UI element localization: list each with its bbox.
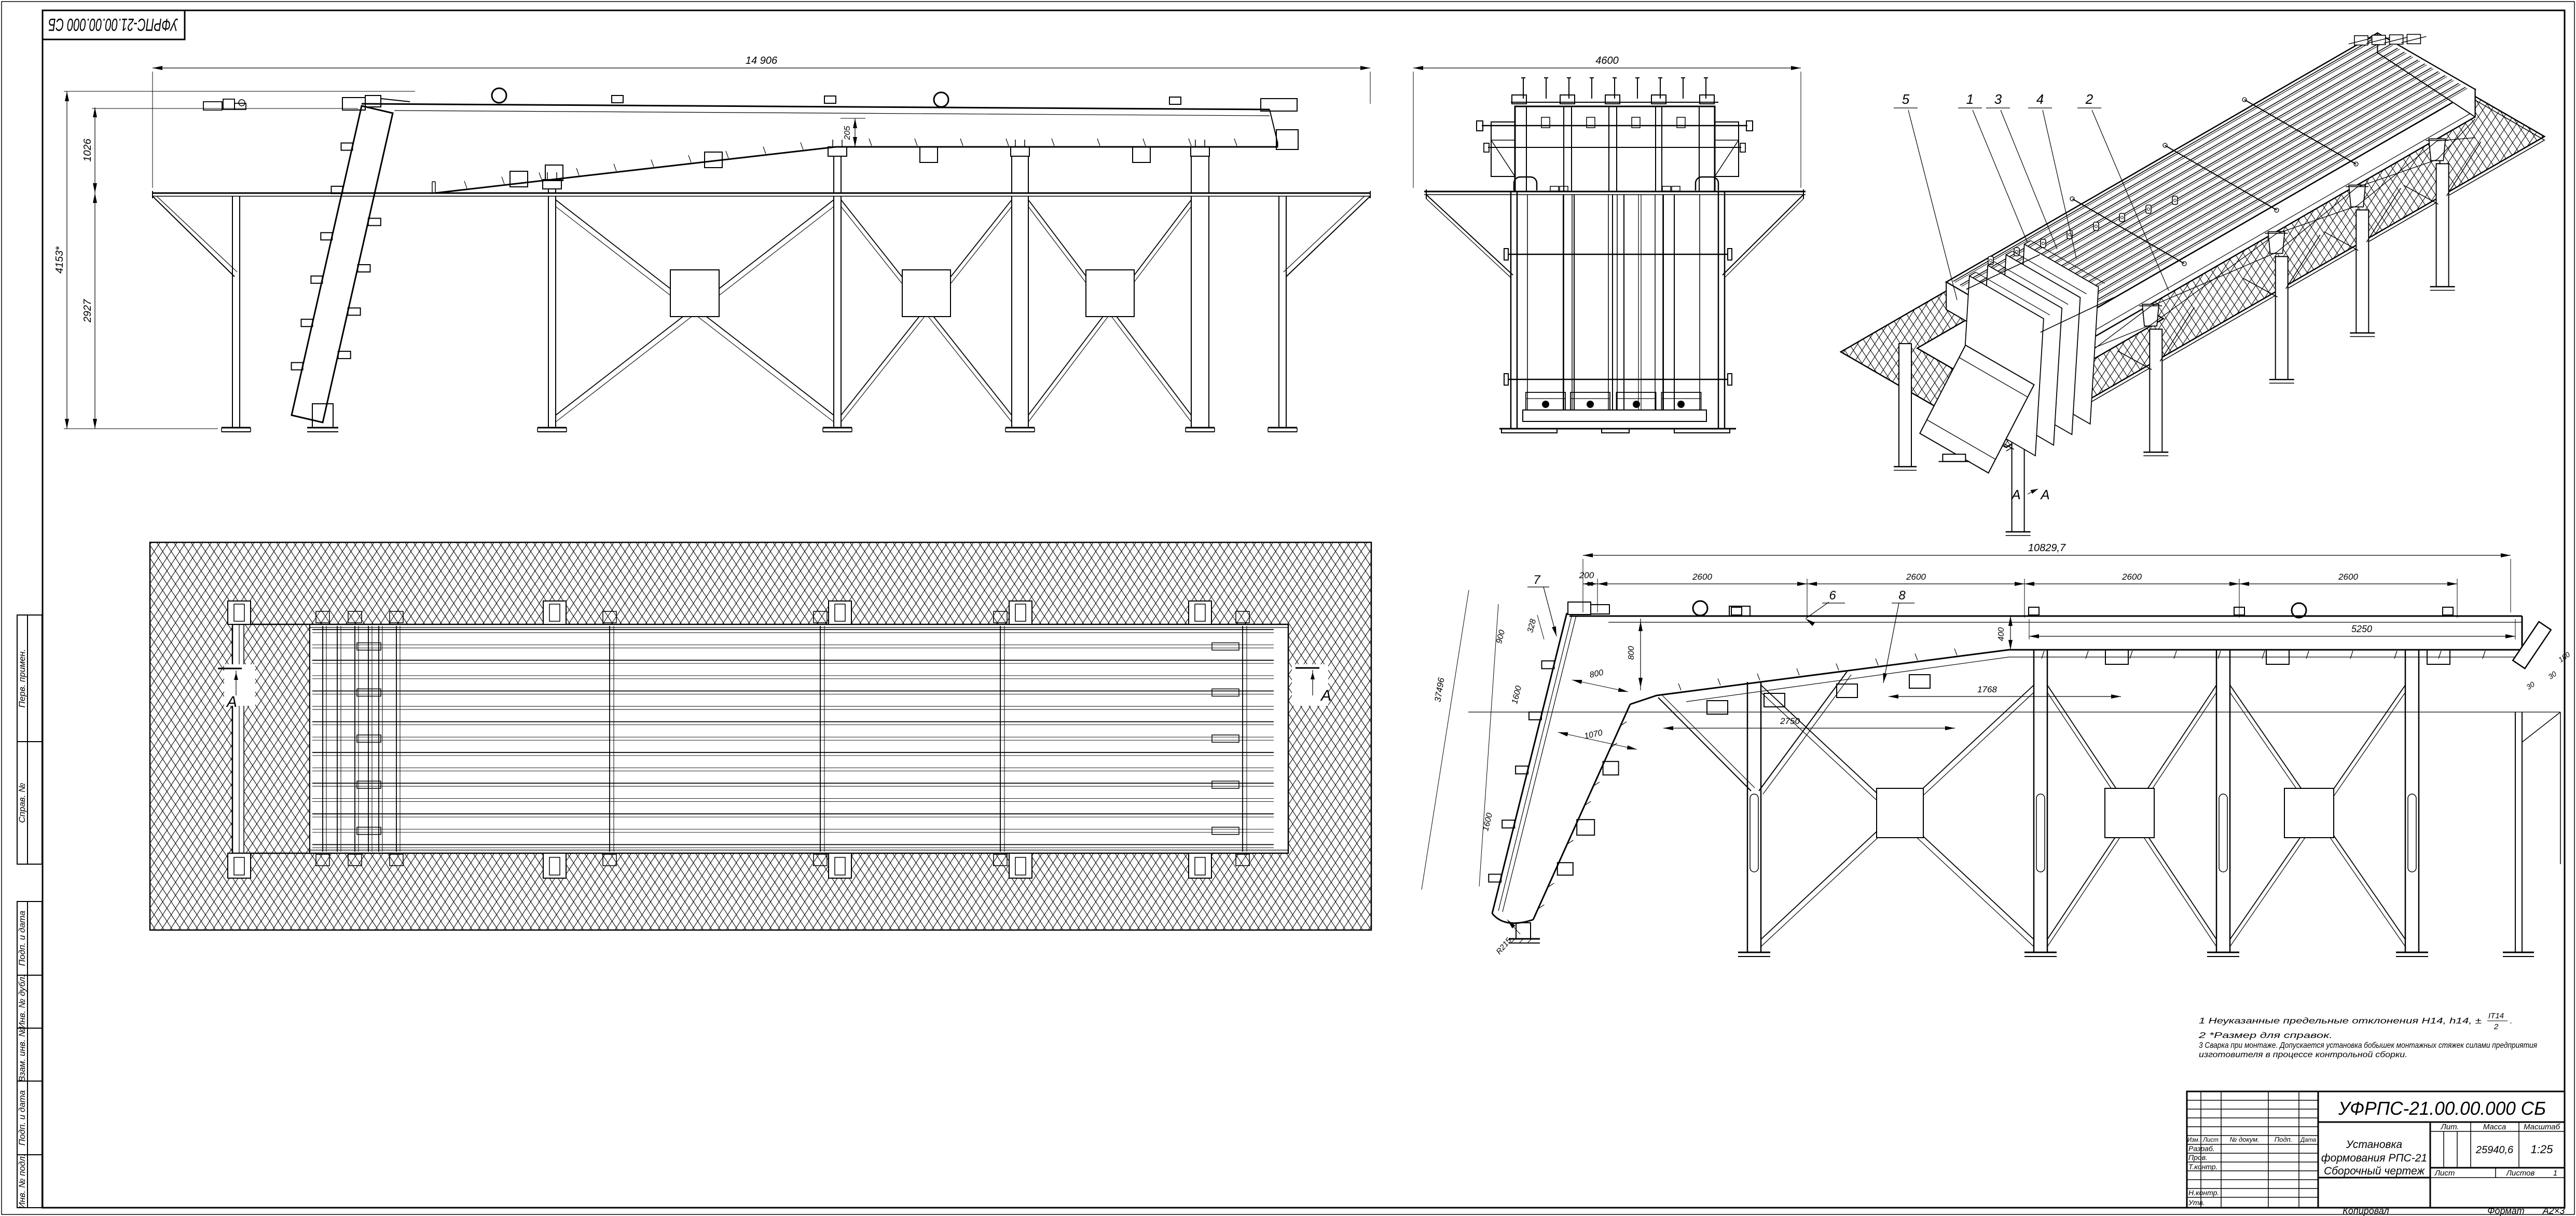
svg-text:Инв. № подл.: Инв. № подл. — [17, 1154, 27, 1209]
svg-text:7: 7 — [1533, 573, 1541, 587]
svg-text:400: 400 — [1997, 627, 2006, 641]
svg-text:Н.контр.: Н.контр. — [2188, 1188, 2219, 1197]
svg-text:Взам. инв. №: Взам. инв. № — [17, 1027, 27, 1082]
svg-text:А: А — [2040, 487, 2049, 502]
svg-text:Перв. примен.: Перв. примен. — [17, 649, 27, 708]
svg-text:205: 205 — [843, 126, 852, 141]
svg-text:5250: 5250 — [2351, 624, 2372, 634]
svg-text:Т.контр.: Т.контр. — [2188, 1163, 2217, 1171]
svg-text:2600: 2600 — [1692, 572, 1712, 582]
svg-text:Установка: Установка — [2346, 1139, 2402, 1151]
svg-text:Лит.: Лит. — [2440, 1123, 2459, 1131]
svg-text:1: 1 — [2553, 1169, 2557, 1178]
svg-text:3: 3 — [1994, 91, 2002, 107]
svg-text:Лист: Лист — [2202, 1136, 2219, 1143]
svg-text:2: 2 — [2085, 91, 2093, 107]
svg-text:А: А — [2010, 487, 2020, 502]
svg-text:4: 4 — [2036, 91, 2044, 107]
svg-text:1768: 1768 — [1977, 685, 1997, 694]
svg-text:Копировал: Копировал — [2343, 1206, 2389, 1216]
svg-text:№ докум.: № докум. — [2229, 1136, 2259, 1143]
svg-text:Сборочный чертеж: Сборочный чертеж — [2324, 1165, 2426, 1177]
svg-text:А: А — [1320, 687, 1331, 704]
svg-text:2: 2 — [2494, 1022, 2499, 1031]
svg-text:Подп. и дата: Подп. и дата — [17, 911, 27, 966]
svg-text:2750: 2750 — [1780, 716, 1800, 726]
svg-text:1026: 1026 — [82, 138, 93, 161]
svg-text:Разраб.: Разраб. — [2188, 1144, 2215, 1153]
svg-text:Изм.: Изм. — [2187, 1136, 2200, 1143]
svg-text:3 Сварка при монтаже. Допуск: 3 Сварка при монтаже. Допускается устано… — [2199, 1041, 2537, 1050]
svg-text:.: . — [2510, 1017, 2512, 1026]
svg-text:УФРПС-21.00.00.000 СБ: УФРПС-21.00.00.000 СБ — [2338, 1098, 2546, 1119]
svg-text:Подп. и дата: Подп. и дата — [17, 1090, 27, 1145]
svg-text:14 906: 14 906 — [746, 55, 778, 66]
svg-text:4600: 4600 — [1595, 55, 1619, 66]
svg-text:2927: 2927 — [82, 299, 93, 323]
svg-text:Формат: Формат — [2487, 1206, 2524, 1216]
svg-text:6: 6 — [1829, 589, 1836, 603]
svg-text:формования РПС-21: формования РПС-21 — [2321, 1152, 2427, 1164]
svg-text:Утв.: Утв. — [2188, 1198, 2205, 1207]
svg-text:Справ. №: Справ. № — [17, 783, 27, 823]
svg-text:А: А — [226, 693, 237, 711]
svg-text:Лист: Лист — [2434, 1169, 2455, 1178]
svg-text:5: 5 — [1902, 91, 1910, 107]
svg-text:Инв. № дубл.: Инв. № дубл. — [17, 975, 27, 1029]
svg-text:1 Неуказанные предельные откл: 1 Неуказанные предельные отклонения Н14,… — [2199, 1017, 2482, 1026]
svg-text:Пров.: Пров. — [2188, 1153, 2208, 1162]
svg-text:25940,6: 25940,6 — [2475, 1144, 2514, 1156]
svg-text:1: 1 — [1966, 91, 1974, 107]
svg-text:Масштаб: Масштаб — [2524, 1123, 2560, 1131]
svg-text:Дата: Дата — [2299, 1136, 2316, 1143]
svg-text:А2×3: А2×3 — [2542, 1206, 2565, 1216]
svg-text:Листов: Листов — [2506, 1169, 2535, 1178]
svg-text:4153*: 4153* — [54, 246, 65, 274]
svg-text:10829,7: 10829,7 — [2028, 542, 2066, 554]
svg-text:УФРПС-21.00.00.000 СБ: УФРПС-21.00.00.000 СБ — [48, 15, 178, 34]
svg-text:2600: 2600 — [2122, 572, 2142, 582]
svg-text:2600: 2600 — [2338, 572, 2358, 582]
svg-text:Подп.: Подп. — [2275, 1136, 2293, 1143]
svg-text:2600: 2600 — [1906, 572, 1926, 582]
svg-text:2 *Размер для справок.: 2 *Размер для справок. — [2198, 1031, 2333, 1040]
svg-text:Масса: Масса — [2483, 1123, 2506, 1131]
svg-text:IT14: IT14 — [2488, 1012, 2504, 1020]
svg-text:8: 8 — [1898, 589, 1906, 603]
svg-text:1:25: 1:25 — [2531, 1143, 2554, 1156]
svg-text:изготовителя в процессе контро: изготовителя в процессе контрольной сбор… — [2199, 1050, 2407, 1059]
svg-text:200: 200 — [1579, 570, 1594, 580]
svg-text:800: 800 — [1627, 646, 1636, 660]
